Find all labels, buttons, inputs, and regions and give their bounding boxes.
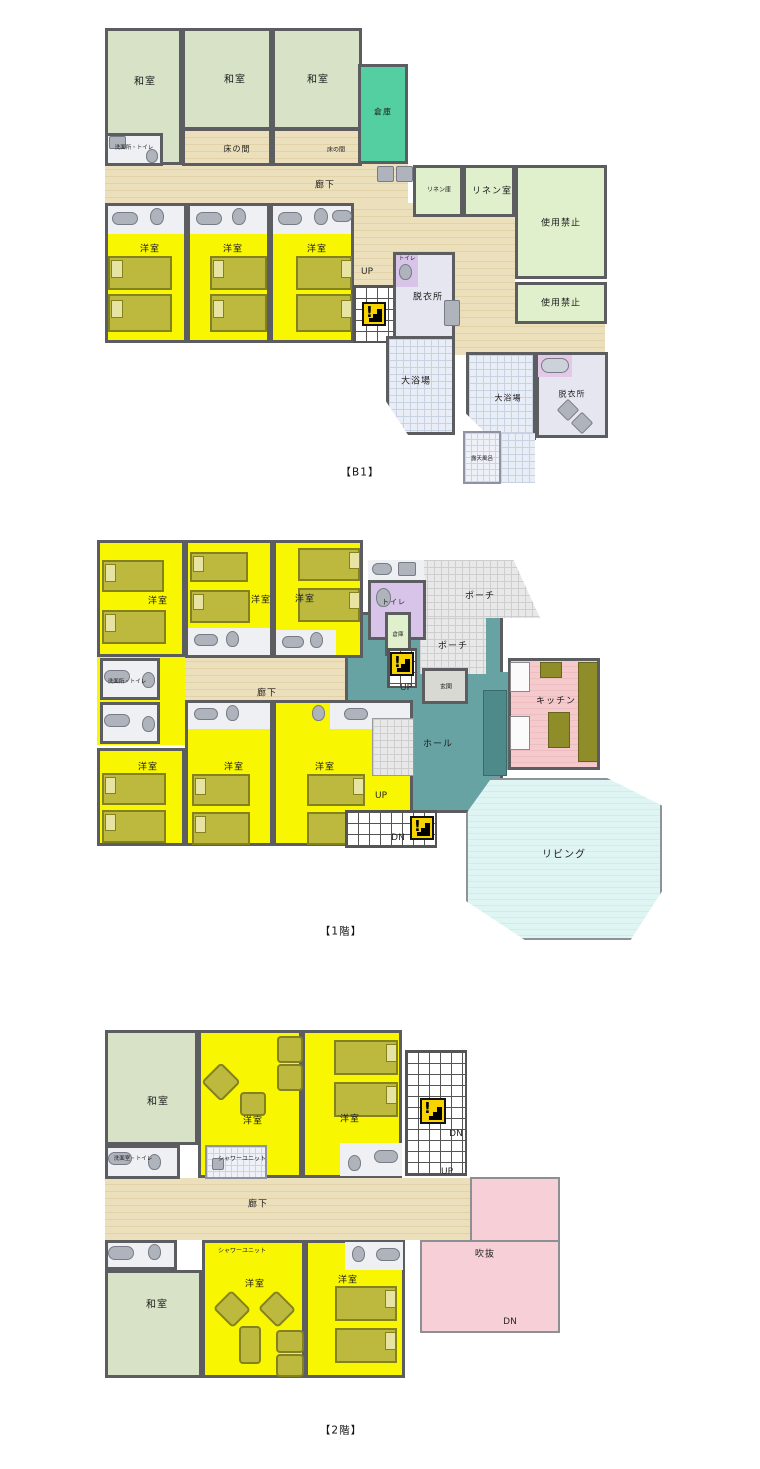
room-label: 吹抜 — [475, 1247, 495, 1260]
washbasin-icon — [376, 1248, 400, 1261]
table-icon — [239, 1326, 261, 1364]
room-label: 洋室 — [340, 1112, 360, 1125]
dn-label: DN — [449, 1129, 463, 1139]
armchair-icon — [240, 1092, 266, 1116]
washbasin-icon — [108, 1246, 134, 1260]
steps-icon — [429, 1107, 442, 1120]
floor-caption-2f: 【2階】 — [320, 1423, 362, 1438]
floorplan-canvas: ! 和室 和室 和室 倉庫 床の間 床の間 洗面所・トイレ 廊下 リネン庫 リネ… — [0, 0, 760, 1469]
room-label: 洋室 — [243, 1114, 263, 1127]
toilet-icon — [148, 1244, 161, 1260]
f2-room-washitsu-t — [105, 1030, 198, 1145]
sofa-icon — [276, 1330, 304, 1353]
pillow-icon — [385, 1332, 396, 1350]
f2-room-washitsu-b — [105, 1270, 202, 1378]
f2-corridor — [105, 1178, 470, 1240]
room-label: シャワーユニット — [218, 1154, 266, 1163]
room-label: 廊下 — [248, 1197, 268, 1210]
sofa-icon — [276, 1354, 304, 1377]
toilet-icon — [348, 1155, 361, 1171]
room-label: 和室 — [147, 1093, 169, 1108]
room-label: シャワーユニット — [218, 1246, 266, 1255]
room-label: 洋室 — [245, 1277, 265, 1290]
room-label: 和室 — [146, 1296, 168, 1311]
pillow-icon — [386, 1086, 397, 1104]
sofa-icon — [277, 1036, 303, 1063]
dn-label: DN — [503, 1317, 517, 1327]
pillow-icon — [386, 1044, 397, 1062]
room-label: 洗面室・トイレ — [114, 1154, 153, 1162]
up-label: UP — [441, 1167, 453, 1177]
stairs-hazard-icon: ! — [420, 1098, 446, 1124]
pillow-icon — [385, 1290, 396, 1308]
room-label: 洋室 — [338, 1273, 358, 1286]
washbasin-icon — [374, 1150, 398, 1163]
floor-2f-plan: ! 和室 洋室 洋室 洗面室・トイレ シャワーユニット 廊下 DN UP 吹抜 — [0, 0, 760, 1469]
toilet-icon — [352, 1246, 365, 1262]
sofa-icon — [277, 1064, 303, 1091]
